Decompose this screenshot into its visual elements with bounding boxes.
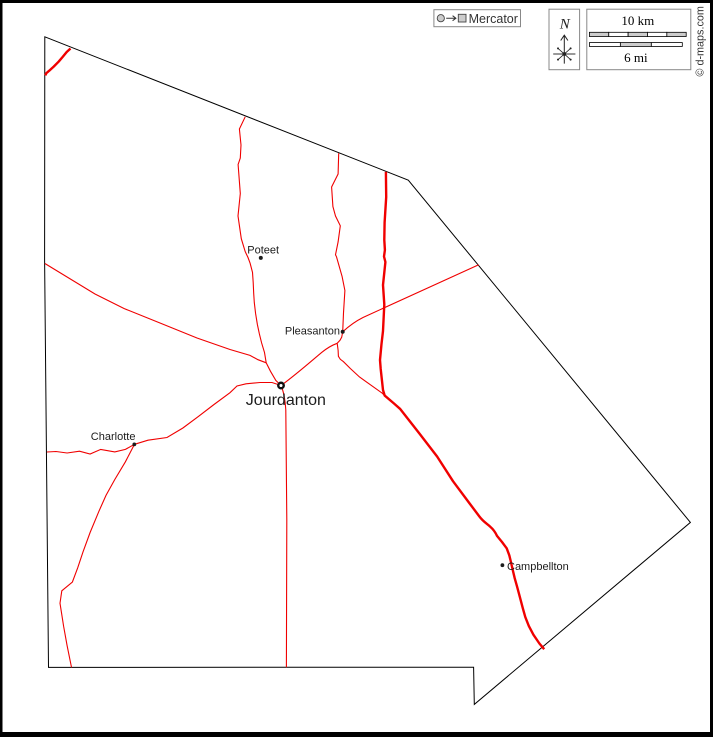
- svg-text:Mercator: Mercator: [469, 12, 518, 26]
- svg-text:Poteet: Poteet: [247, 245, 279, 257]
- svg-text:Charlotte: Charlotte: [91, 431, 136, 443]
- svg-text:10 km: 10 km: [621, 13, 654, 28]
- svg-text:6 mi: 6 mi: [624, 50, 648, 65]
- svg-text:Campbellton: Campbellton: [507, 561, 569, 573]
- svg-text:N: N: [559, 17, 571, 33]
- svg-text:Pleasanton: Pleasanton: [285, 325, 340, 337]
- svg-text:Jourdanton: Jourdanton: [246, 392, 326, 409]
- svg-text:© d-maps.com: © d-maps.com: [695, 6, 707, 76]
